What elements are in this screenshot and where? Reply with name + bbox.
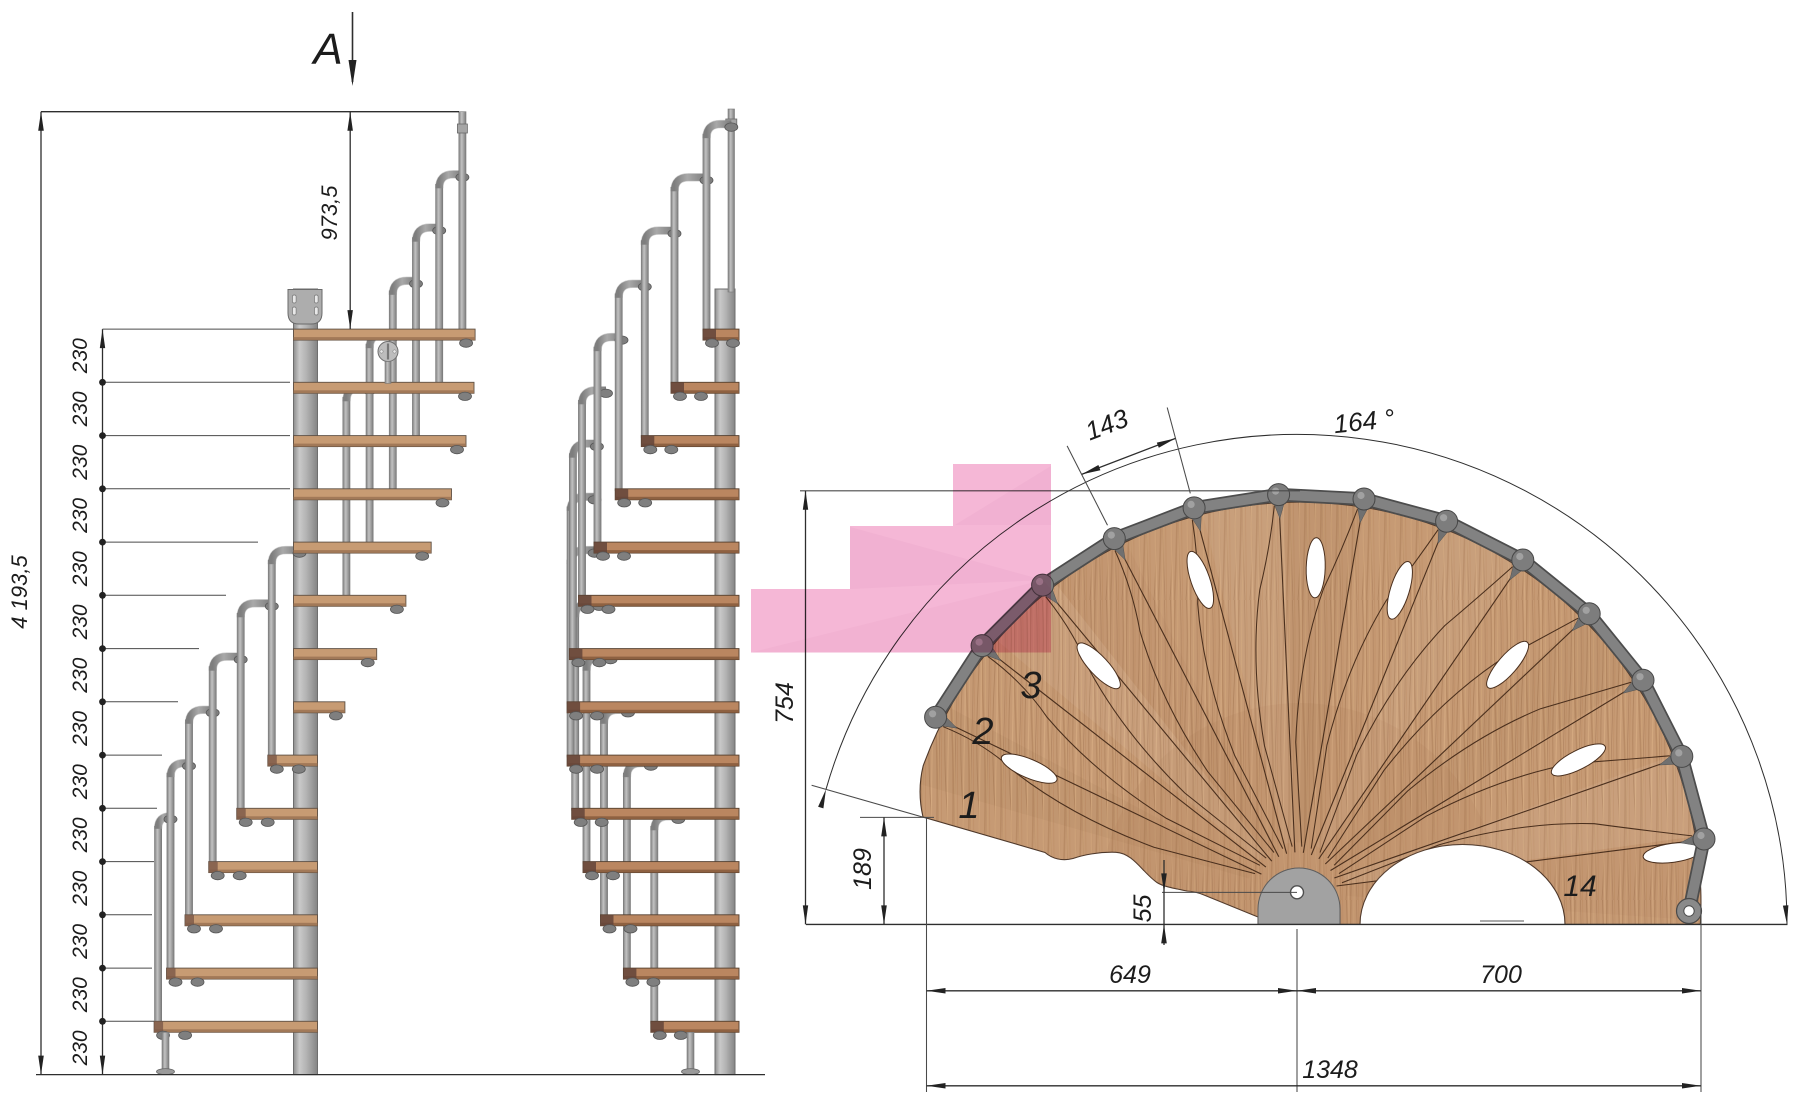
- svg-text:230: 230: [69, 1030, 92, 1066]
- svg-text:230: 230: [69, 604, 92, 640]
- svg-text:2: 2: [971, 711, 993, 753]
- svg-text:230: 230: [69, 657, 92, 693]
- svg-text:230: 230: [69, 764, 92, 800]
- svg-text:230: 230: [69, 977, 92, 1013]
- svg-text:230: 230: [69, 338, 92, 374]
- svg-text:1348: 1348: [1302, 1056, 1358, 1084]
- svg-text:973,5: 973,5: [317, 185, 342, 241]
- svg-text:230: 230: [69, 870, 92, 906]
- svg-text:230: 230: [69, 391, 92, 427]
- svg-text:754: 754: [771, 682, 799, 724]
- svg-text:700: 700: [1480, 961, 1522, 989]
- svg-text:A: A: [310, 25, 342, 74]
- svg-text:230: 230: [69, 817, 92, 853]
- svg-text:649: 649: [1109, 961, 1151, 989]
- svg-text:230: 230: [69, 551, 92, 587]
- svg-text:55: 55: [1129, 895, 1157, 923]
- svg-text:4 193,5: 4 193,5: [7, 555, 32, 629]
- svg-text:3: 3: [1020, 665, 1041, 707]
- svg-text:1: 1: [958, 785, 979, 827]
- svg-text:14: 14: [1563, 870, 1596, 903]
- svg-text:164 °: 164 °: [1332, 403, 1396, 439]
- svg-text:230: 230: [69, 498, 92, 534]
- svg-text:230: 230: [69, 711, 92, 747]
- svg-text:230: 230: [69, 924, 92, 960]
- svg-text:189: 189: [849, 848, 877, 890]
- svg-text:230: 230: [69, 444, 92, 480]
